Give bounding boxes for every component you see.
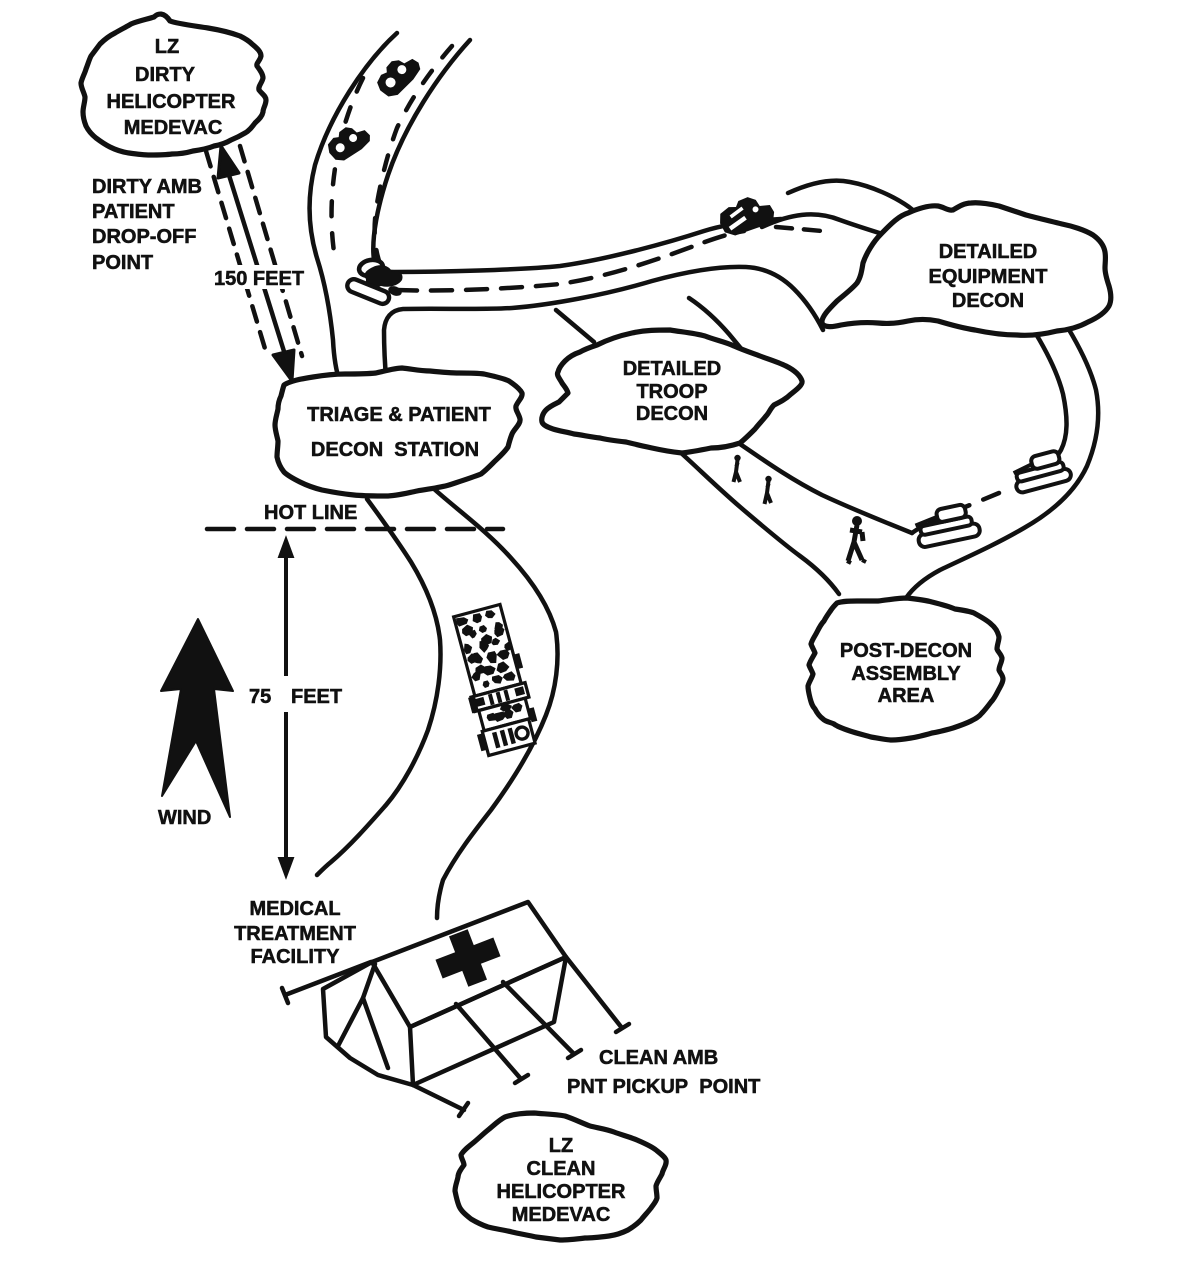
- svg-text:LZ: LZ: [549, 1135, 573, 1157]
- svg-text:EQUIPMENT: EQUIPMENT: [929, 266, 1048, 288]
- svg-text:CLEAN AMB: CLEAN AMB: [599, 1047, 718, 1069]
- svg-text:75: 75: [249, 686, 271, 708]
- svg-text:DETAILED: DETAILED: [939, 241, 1038, 263]
- svg-text:POST-DECON: POST-DECON: [840, 640, 972, 662]
- svg-text:DECON: DECON: [636, 403, 708, 425]
- svg-text:DIRTY AMB: DIRTY AMB: [92, 176, 202, 198]
- svg-text:TROOP: TROOP: [636, 381, 707, 403]
- svg-text:FACILITY: FACILITY: [251, 946, 341, 968]
- svg-text:DIRTY: DIRTY: [135, 64, 196, 86]
- svg-text:POINT: POINT: [92, 252, 153, 274]
- svg-text:CLEAN: CLEAN: [527, 1158, 596, 1180]
- svg-text:FEET: FEET: [291, 686, 342, 708]
- svg-text:MEDICAL: MEDICAL: [249, 898, 340, 920]
- svg-text:150 FEET: 150 FEET: [214, 268, 304, 290]
- svg-text:HELICOPTER: HELICOPTER: [497, 1181, 626, 1203]
- svg-text:HELICOPTER: HELICOPTER: [107, 91, 236, 113]
- svg-text:DECON: DECON: [952, 290, 1024, 312]
- svg-text:DROP-OFF: DROP-OFF: [92, 226, 196, 248]
- svg-text:MEDEVAC: MEDEVAC: [124, 117, 223, 139]
- svg-text:ASSEMBLY: ASSEMBLY: [851, 663, 961, 685]
- svg-text:HOT LINE: HOT LINE: [264, 502, 357, 524]
- svg-text:DETAILED: DETAILED: [623, 358, 722, 380]
- svg-text:LZ: LZ: [155, 36, 179, 58]
- svg-text:TREATMENT: TREATMENT: [234, 923, 356, 945]
- svg-text:TRIAGE & PATIENT: TRIAGE & PATIENT: [307, 404, 491, 426]
- svg-text:PNT PICKUP POINT: PNT PICKUP POINT: [567, 1076, 760, 1098]
- svg-text:DECON STATION: DECON STATION: [311, 439, 479, 461]
- svg-text:WIND: WIND: [158, 807, 211, 829]
- svg-text:PATIENT: PATIENT: [92, 201, 175, 223]
- svg-text:AREA: AREA: [878, 685, 935, 707]
- svg-text:MEDEVAC: MEDEVAC: [512, 1204, 611, 1226]
